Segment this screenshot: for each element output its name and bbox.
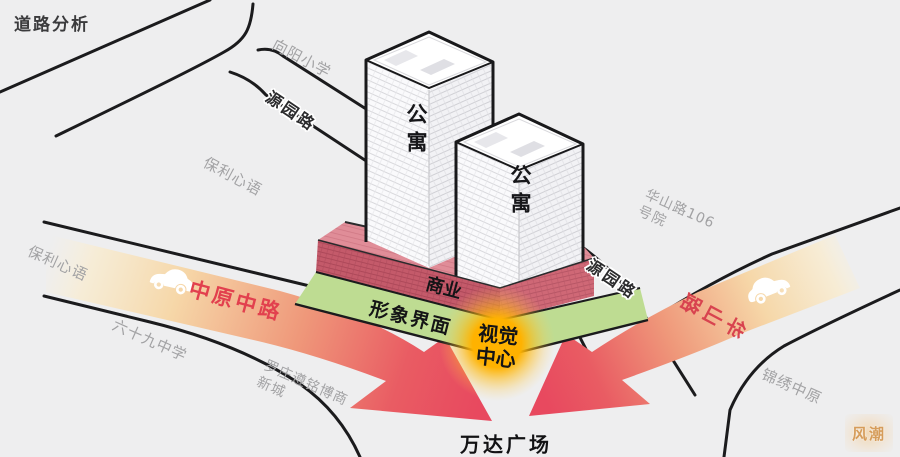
road-analysis-diagram: 道路分析 向阳小学 源园路 保利心语 保利心语 六十九中学 罗庄遵铭博商 新城 … bbox=[0, 0, 900, 457]
watermark-text: 风潮 bbox=[852, 423, 886, 444]
road-top-left-outer bbox=[0, 0, 210, 92]
site-map-canvas bbox=[0, 0, 900, 457]
watermark-logo: 风潮 bbox=[845, 414, 893, 452]
visual-center-glow bbox=[439, 285, 555, 401]
